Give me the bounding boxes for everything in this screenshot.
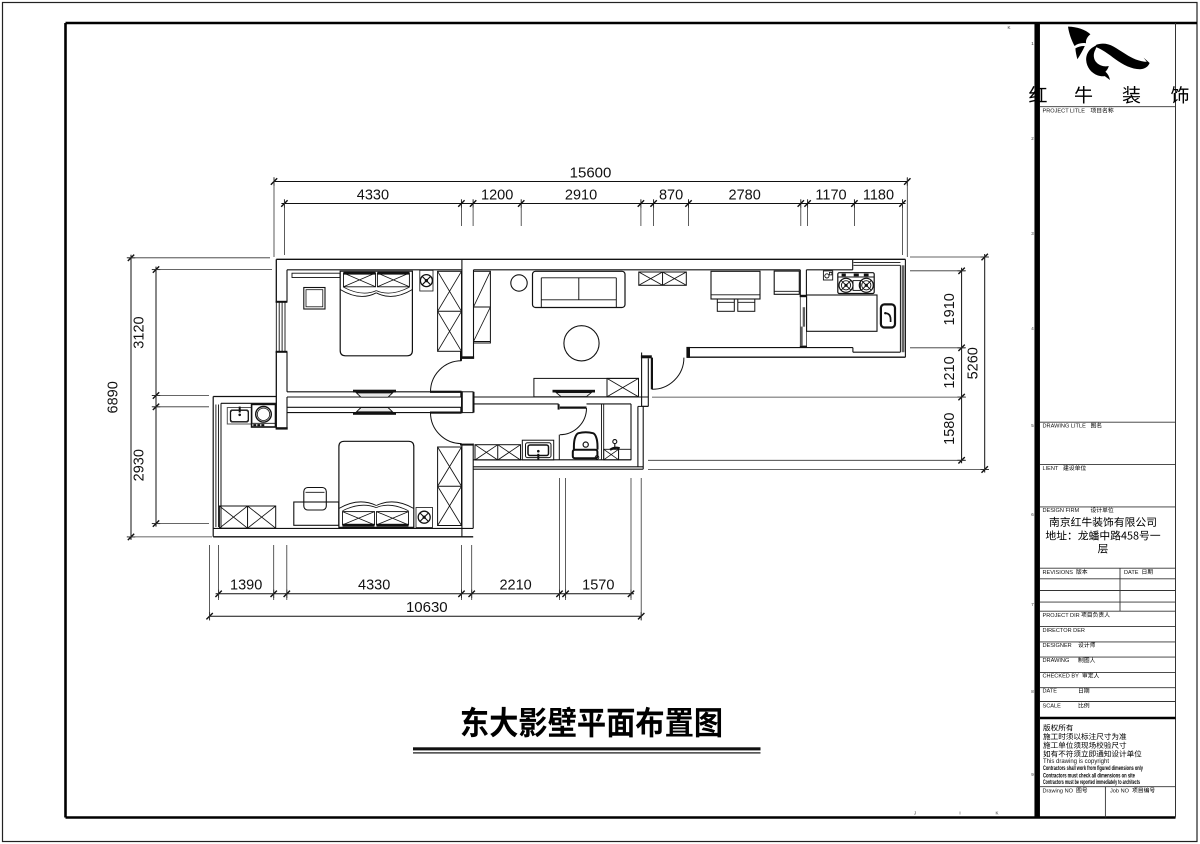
svg-text:5: 5 bbox=[1031, 423, 1034, 428]
svg-text:4: 4 bbox=[1031, 326, 1034, 331]
svg-text:2210: 2210 bbox=[499, 578, 531, 594]
svg-text:DRAWING: DRAWING bbox=[1043, 658, 1070, 664]
svg-text:1: 1 bbox=[1031, 41, 1034, 46]
svg-text:J: J bbox=[914, 811, 916, 816]
svg-text:1200: 1200 bbox=[481, 188, 513, 204]
svg-text:DESIGN FIRM: DESIGN FIRM bbox=[1043, 508, 1080, 514]
svg-text:DATE: DATE bbox=[1043, 689, 1058, 695]
svg-text:1210: 1210 bbox=[942, 356, 958, 388]
svg-text:K: K bbox=[1007, 25, 1010, 30]
svg-text:6: 6 bbox=[1031, 512, 1034, 517]
svg-text:15600: 15600 bbox=[570, 165, 612, 182]
svg-text:10630: 10630 bbox=[406, 599, 448, 616]
svg-text:Contractors shall work from fi: Contractors shall work from figured dime… bbox=[1043, 765, 1143, 772]
svg-text:I: I bbox=[959, 811, 960, 816]
svg-text:PROJECT LITLE: PROJECT LITLE bbox=[1043, 109, 1086, 115]
svg-text:2: 2 bbox=[1031, 136, 1034, 141]
svg-text:6890: 6890 bbox=[106, 381, 122, 413]
svg-text:3: 3 bbox=[1031, 231, 1034, 236]
svg-text:9: 9 bbox=[1031, 772, 1034, 777]
svg-text:7: 7 bbox=[1031, 602, 1034, 607]
svg-text:4330: 4330 bbox=[357, 188, 389, 204]
svg-text:1910: 1910 bbox=[942, 293, 958, 325]
svg-text:870: 870 bbox=[659, 188, 683, 204]
svg-text:SCALE: SCALE bbox=[1043, 704, 1062, 710]
svg-text:4330: 4330 bbox=[358, 578, 390, 594]
svg-text:1580: 1580 bbox=[942, 413, 958, 445]
svg-text:2780: 2780 bbox=[729, 188, 761, 204]
svg-text:Job NO: Job NO bbox=[1110, 788, 1130, 794]
svg-text:DESIGNER: DESIGNER bbox=[1043, 643, 1072, 649]
svg-text:2930: 2930 bbox=[132, 449, 148, 481]
svg-text:1570: 1570 bbox=[582, 578, 614, 594]
svg-text:PROJECT DIR: PROJECT DIR bbox=[1043, 613, 1080, 619]
svg-text:CHECKED BY: CHECKED BY bbox=[1043, 674, 1080, 680]
svg-text:REVISIONS: REVISIONS bbox=[1043, 570, 1074, 576]
svg-text:1180: 1180 bbox=[863, 188, 894, 204]
svg-text:DATE: DATE bbox=[1124, 570, 1139, 576]
svg-text:This drawing is copyright: This drawing is copyright bbox=[1043, 759, 1109, 765]
svg-text:3120: 3120 bbox=[132, 316, 148, 348]
svg-text:1170: 1170 bbox=[815, 188, 846, 204]
svg-text:DRAWING LITLE: DRAWING LITLE bbox=[1043, 424, 1087, 430]
svg-text:Drawing NO: Drawing NO bbox=[1043, 788, 1074, 794]
svg-text:K: K bbox=[995, 811, 998, 816]
svg-text:1390: 1390 bbox=[230, 578, 262, 594]
svg-text:LIENT: LIENT bbox=[1043, 466, 1059, 472]
svg-text:2910: 2910 bbox=[565, 188, 597, 204]
svg-text:5260: 5260 bbox=[965, 347, 981, 379]
svg-text:DIRECTOR DER: DIRECTOR DER bbox=[1043, 628, 1085, 634]
svg-text:Contractors must be reported i: Contractors must be reported immediately… bbox=[1043, 779, 1140, 786]
svg-text:8: 8 bbox=[1031, 689, 1034, 694]
